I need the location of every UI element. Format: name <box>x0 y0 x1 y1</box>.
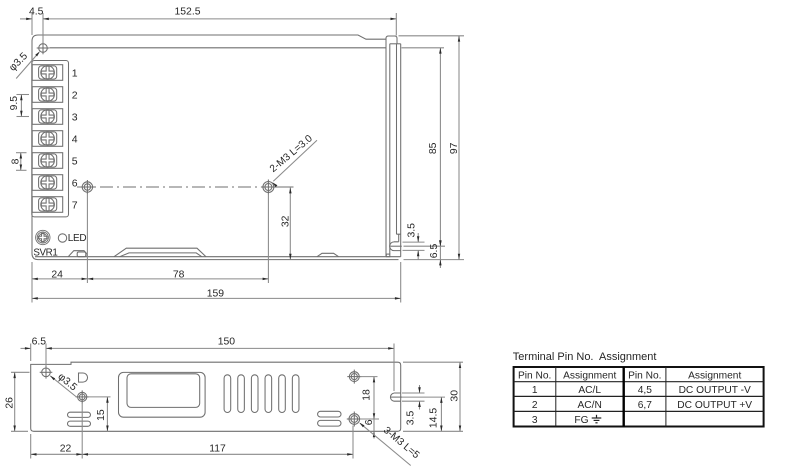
svg-text:SVR1: SVR1 <box>33 248 57 259</box>
svg-text:15: 15 <box>96 409 107 421</box>
svg-text:AC/L: AC/L <box>578 385 601 396</box>
svg-text:4.5: 4.5 <box>29 7 44 18</box>
svg-text:6,7: 6,7 <box>638 400 652 411</box>
svg-text:Terminal Pin No. Assignment: Terminal Pin No. Assignment <box>513 351 657 363</box>
svg-text:6.5: 6.5 <box>429 244 440 259</box>
svg-text:4: 4 <box>72 133 78 145</box>
svg-text:Pin No.: Pin No. <box>628 370 661 381</box>
svg-text:FG: FG <box>574 415 588 426</box>
svg-text:8: 8 <box>10 158 21 164</box>
svg-text:1: 1 <box>72 67 78 79</box>
svg-text:1: 1 <box>532 385 538 396</box>
svg-text:Pin No.: Pin No. <box>518 370 551 381</box>
svg-text:6.5: 6.5 <box>32 337 47 348</box>
svg-text:22: 22 <box>60 444 72 455</box>
svg-text:150: 150 <box>218 337 236 348</box>
svg-text:5: 5 <box>72 155 78 167</box>
svg-text:2: 2 <box>532 400 538 411</box>
svg-text:30: 30 <box>450 390 461 402</box>
svg-text:4,5: 4,5 <box>638 385 652 396</box>
svg-text:Assignment: Assignment <box>688 370 741 381</box>
svg-text:6: 6 <box>364 419 375 425</box>
svg-text:6: 6 <box>72 177 78 189</box>
svg-text:AC/N: AC/N <box>578 400 602 411</box>
svg-text:DC OUTPUT -V: DC OUTPUT -V <box>679 385 751 396</box>
svg-text:3.5: 3.5 <box>406 411 417 426</box>
svg-text:117: 117 <box>209 444 226 455</box>
svg-text:DC OUTPUT +V: DC OUTPUT +V <box>677 400 752 411</box>
svg-text:Assignment: Assignment <box>563 370 616 381</box>
svg-text:3.5: 3.5 <box>406 223 417 238</box>
svg-text:3: 3 <box>532 415 538 426</box>
svg-text:14.5: 14.5 <box>429 408 440 428</box>
svg-text:7: 7 <box>72 199 78 211</box>
svg-text:159: 159 <box>207 289 225 300</box>
svg-text:18: 18 <box>362 389 373 401</box>
svg-text:3: 3 <box>72 111 78 123</box>
svg-text:152.5: 152.5 <box>174 7 200 18</box>
svg-text:97: 97 <box>449 142 460 154</box>
svg-text:LED: LED <box>68 233 87 244</box>
svg-text:26: 26 <box>4 397 15 409</box>
svg-text:9.5: 9.5 <box>9 96 20 111</box>
svg-text:2: 2 <box>72 89 78 101</box>
svg-text:85: 85 <box>428 142 439 154</box>
